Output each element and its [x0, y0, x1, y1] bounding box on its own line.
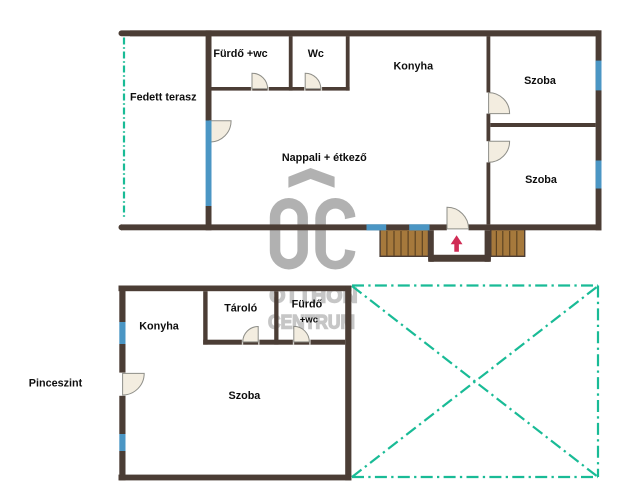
svg-text:Konyha: Konyha [394, 61, 435, 73]
svg-text:Szoba: Szoba [524, 75, 557, 87]
svg-text:Konyha: Konyha [139, 320, 180, 332]
svg-text:+wc: +wc [300, 314, 319, 325]
svg-text:Wc: Wc [308, 48, 324, 60]
svg-text:Szoba: Szoba [525, 174, 558, 186]
svg-text:Fürdő: Fürdő [292, 299, 323, 311]
svg-text:Tároló: Tároló [224, 302, 257, 314]
svg-text:Pinceszint: Pinceszint [29, 377, 83, 389]
svg-text:Fedett terasz: Fedett terasz [130, 92, 197, 104]
svg-text:Fürdő +wc: Fürdő +wc [213, 48, 267, 60]
svg-text:Szoba: Szoba [229, 390, 262, 402]
svg-text:Nappali + étkező: Nappali + étkező [282, 152, 367, 164]
